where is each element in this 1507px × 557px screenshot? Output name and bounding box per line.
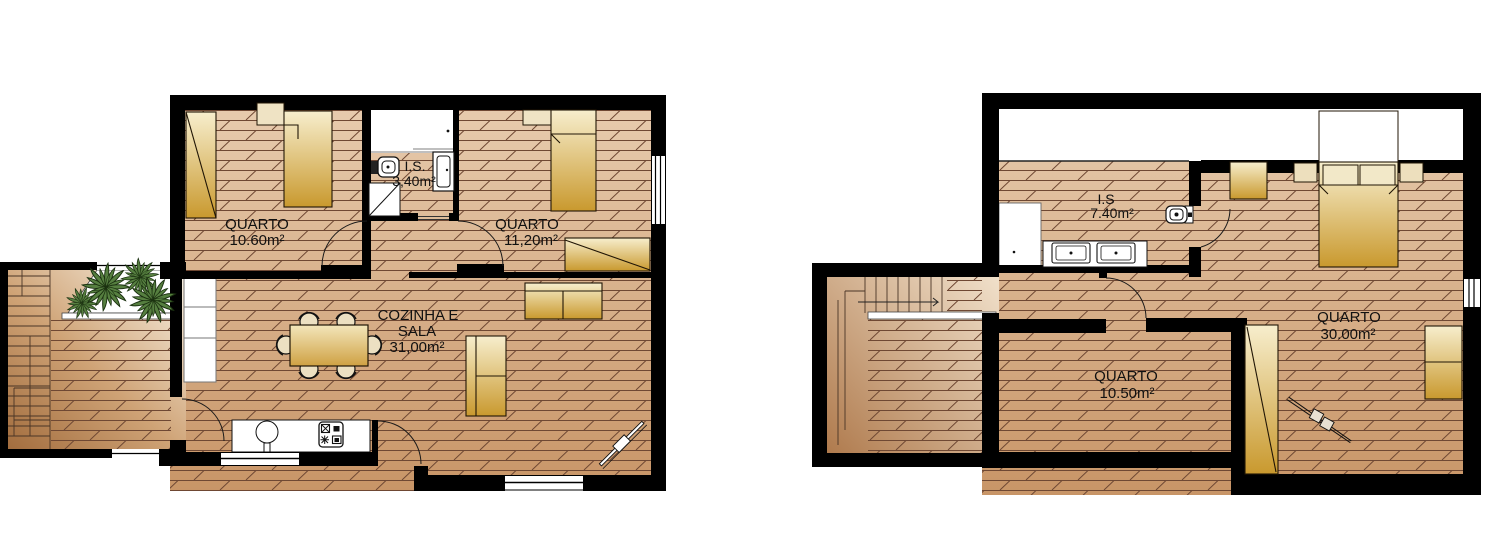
svg-text:11,20m²: 11,20m² <box>504 232 558 249</box>
svg-text:SALA: SALA <box>398 323 436 340</box>
svg-text:QUARTO: QUARTO <box>1317 309 1381 326</box>
svg-text:QUARTO: QUARTO <box>1094 368 1158 385</box>
svg-text:31,00m²: 31,00m² <box>389 339 444 356</box>
svg-text:QUARTO: QUARTO <box>225 216 289 233</box>
svg-text:10.50m²: 10.50m² <box>1099 385 1154 402</box>
svg-text:I.S.: I.S. <box>404 158 425 174</box>
svg-text:30.00m²: 30.00m² <box>1320 326 1375 343</box>
svg-text:QUARTO: QUARTO <box>495 216 559 233</box>
svg-text:COZINHA E: COZINHA E <box>378 307 459 324</box>
svg-text:7.40m²: 7.40m² <box>1090 205 1134 221</box>
svg-text:10.60m²: 10.60m² <box>229 232 284 249</box>
svg-text:3,40m²: 3,40m² <box>392 173 436 189</box>
